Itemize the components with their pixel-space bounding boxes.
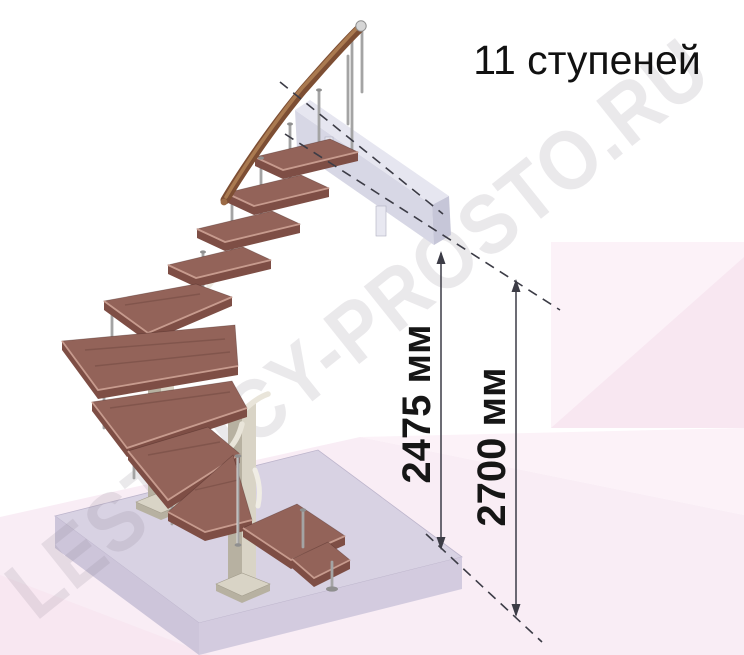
steps-count-label: 11 ступеней [473, 37, 701, 83]
dimension-2475-label: 2475 мм [395, 324, 439, 483]
handrail-end-cap [356, 21, 366, 31]
dimension-2700-label: 2700 мм [470, 367, 514, 526]
tread-9 [197, 211, 300, 251]
staircase-diagram: LESTNICY-PROSTO.RU [0, 0, 744, 655]
beam-bracket [376, 206, 386, 236]
tread-8 [168, 247, 271, 287]
arrowhead-up [512, 279, 521, 292]
